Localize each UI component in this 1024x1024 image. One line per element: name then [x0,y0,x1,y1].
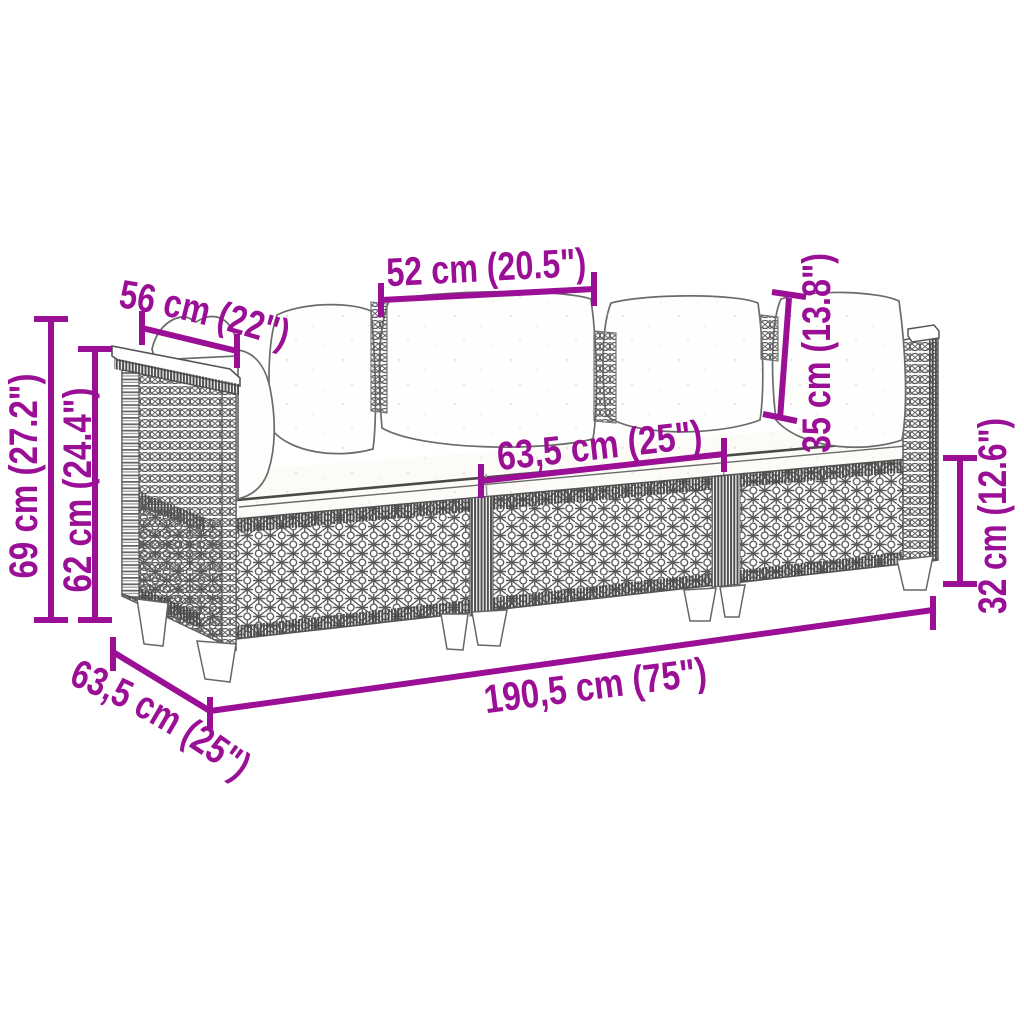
svg-text:32 cm (12.6"): 32 cm (12.6") [971,418,1015,614]
svg-text:62 cm (24.4"): 62 cm (24.4") [56,388,100,593]
svg-text:35 cm (13.8"): 35 cm (13.8") [795,253,839,453]
svg-text:69 cm (27.2"): 69 cm (27.2") [2,374,46,579]
